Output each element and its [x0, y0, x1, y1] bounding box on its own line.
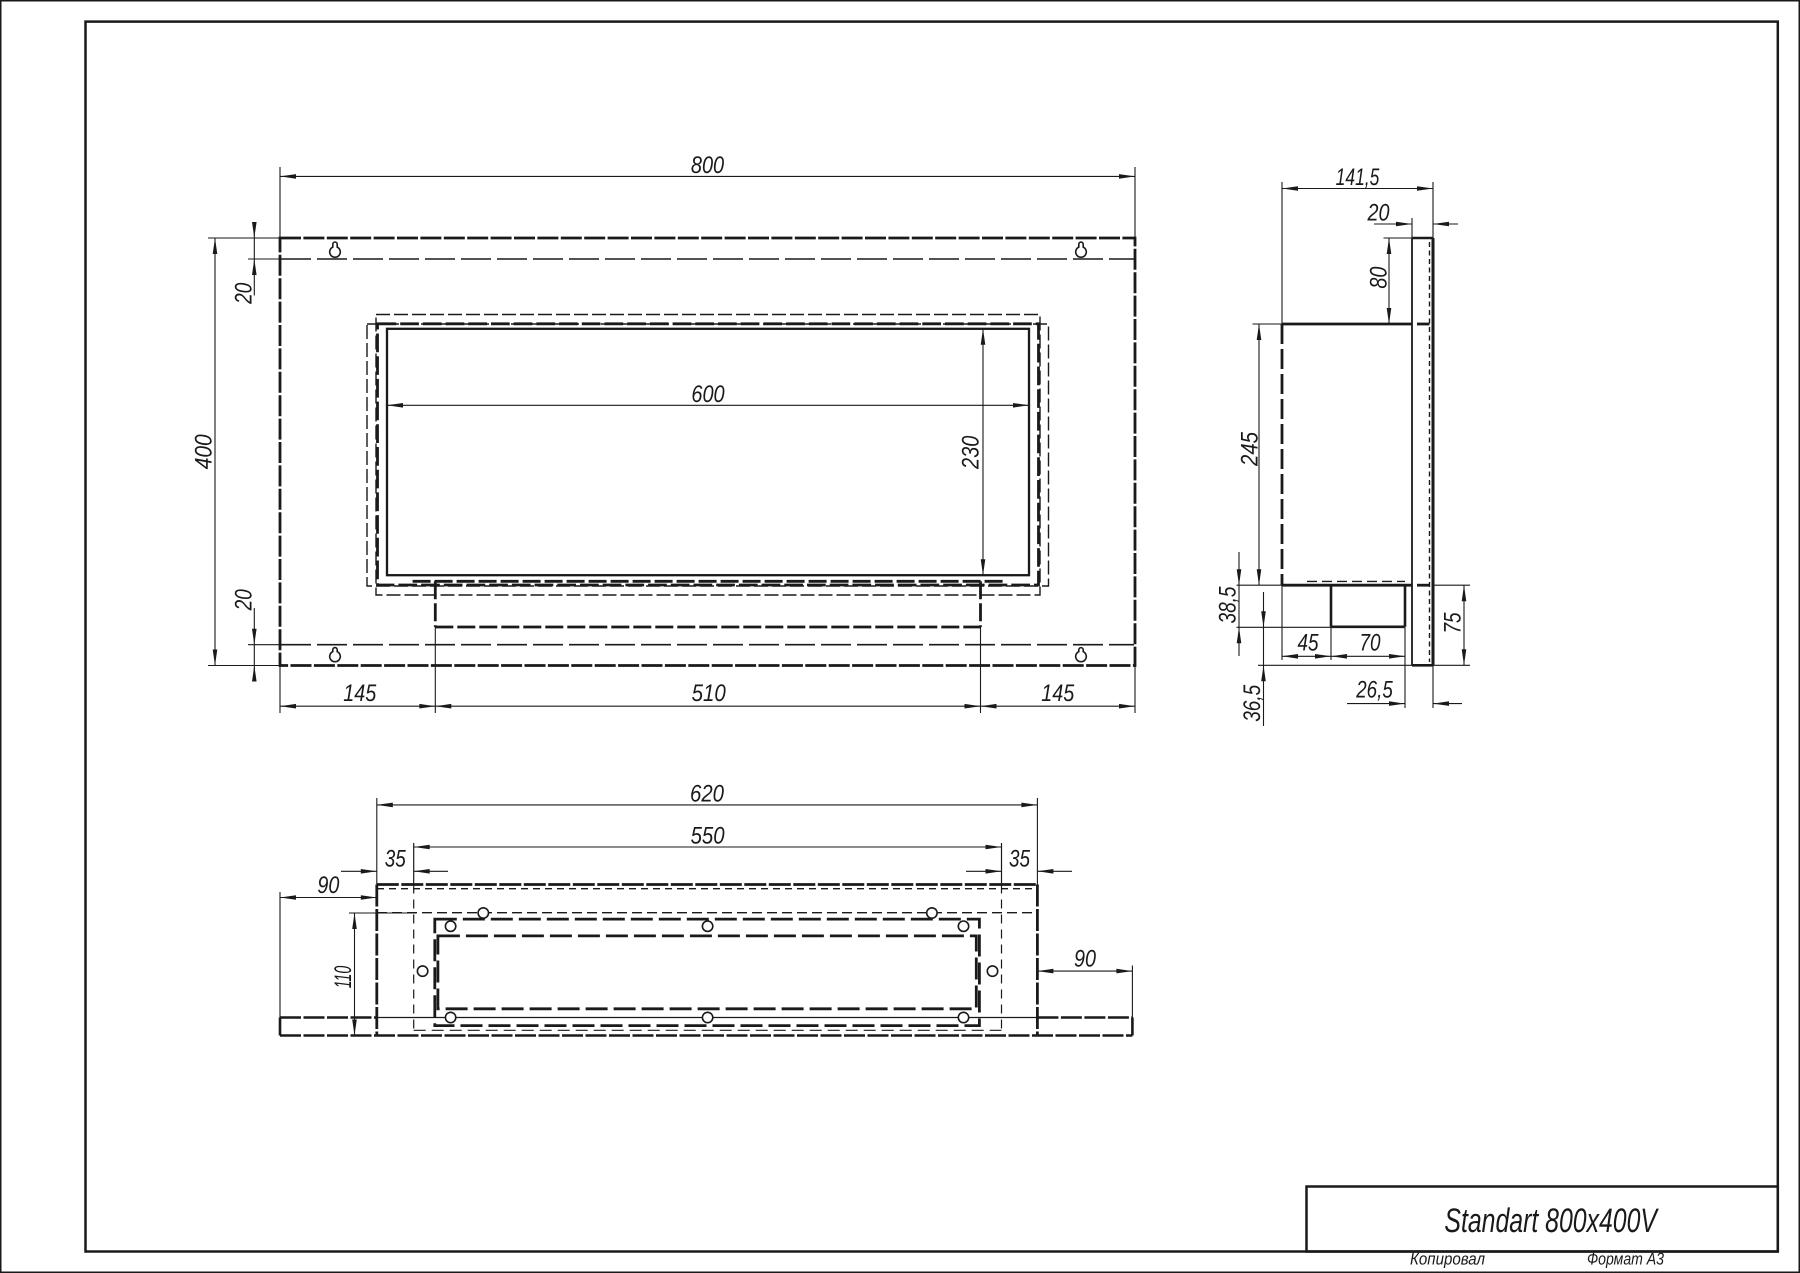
svg-text:80: 80: [1366, 266, 1393, 289]
svg-text:145: 145: [1041, 680, 1075, 707]
svg-text:20: 20: [1367, 200, 1390, 227]
svg-text:45: 45: [1298, 629, 1320, 656]
svg-text:90: 90: [317, 872, 340, 899]
svg-text:35: 35: [385, 845, 407, 872]
svg-text:550: 550: [691, 823, 726, 850]
svg-text:110: 110: [330, 965, 357, 988]
svg-text:230: 230: [958, 435, 985, 470]
svg-text:620: 620: [690, 780, 725, 807]
svg-text:70: 70: [1360, 629, 1382, 656]
svg-text:26,5: 26,5: [1355, 677, 1393, 704]
svg-text:36,5: 36,5: [1239, 684, 1266, 722]
svg-text:Standart 800x400V: Standart 800x400V: [1444, 1202, 1659, 1240]
svg-text:245: 245: [1237, 431, 1264, 466]
svg-text:75: 75: [1440, 612, 1467, 634]
svg-text:90: 90: [1074, 946, 1097, 973]
svg-text:600: 600: [691, 381, 725, 408]
svg-text:20: 20: [230, 282, 257, 305]
svg-text:145: 145: [343, 680, 377, 707]
svg-text:20: 20: [230, 589, 257, 612]
svg-text:38,5: 38,5: [1215, 586, 1242, 624]
svg-text:Формат А3: Формат А3: [1587, 1250, 1664, 1269]
svg-text:400: 400: [191, 434, 218, 470]
svg-text:35: 35: [1009, 845, 1031, 872]
svg-text:141,5: 141,5: [1336, 164, 1380, 191]
svg-text:800: 800: [691, 152, 725, 179]
svg-text:Копировал: Копировал: [1410, 1250, 1485, 1269]
svg-text:510: 510: [692, 680, 727, 707]
